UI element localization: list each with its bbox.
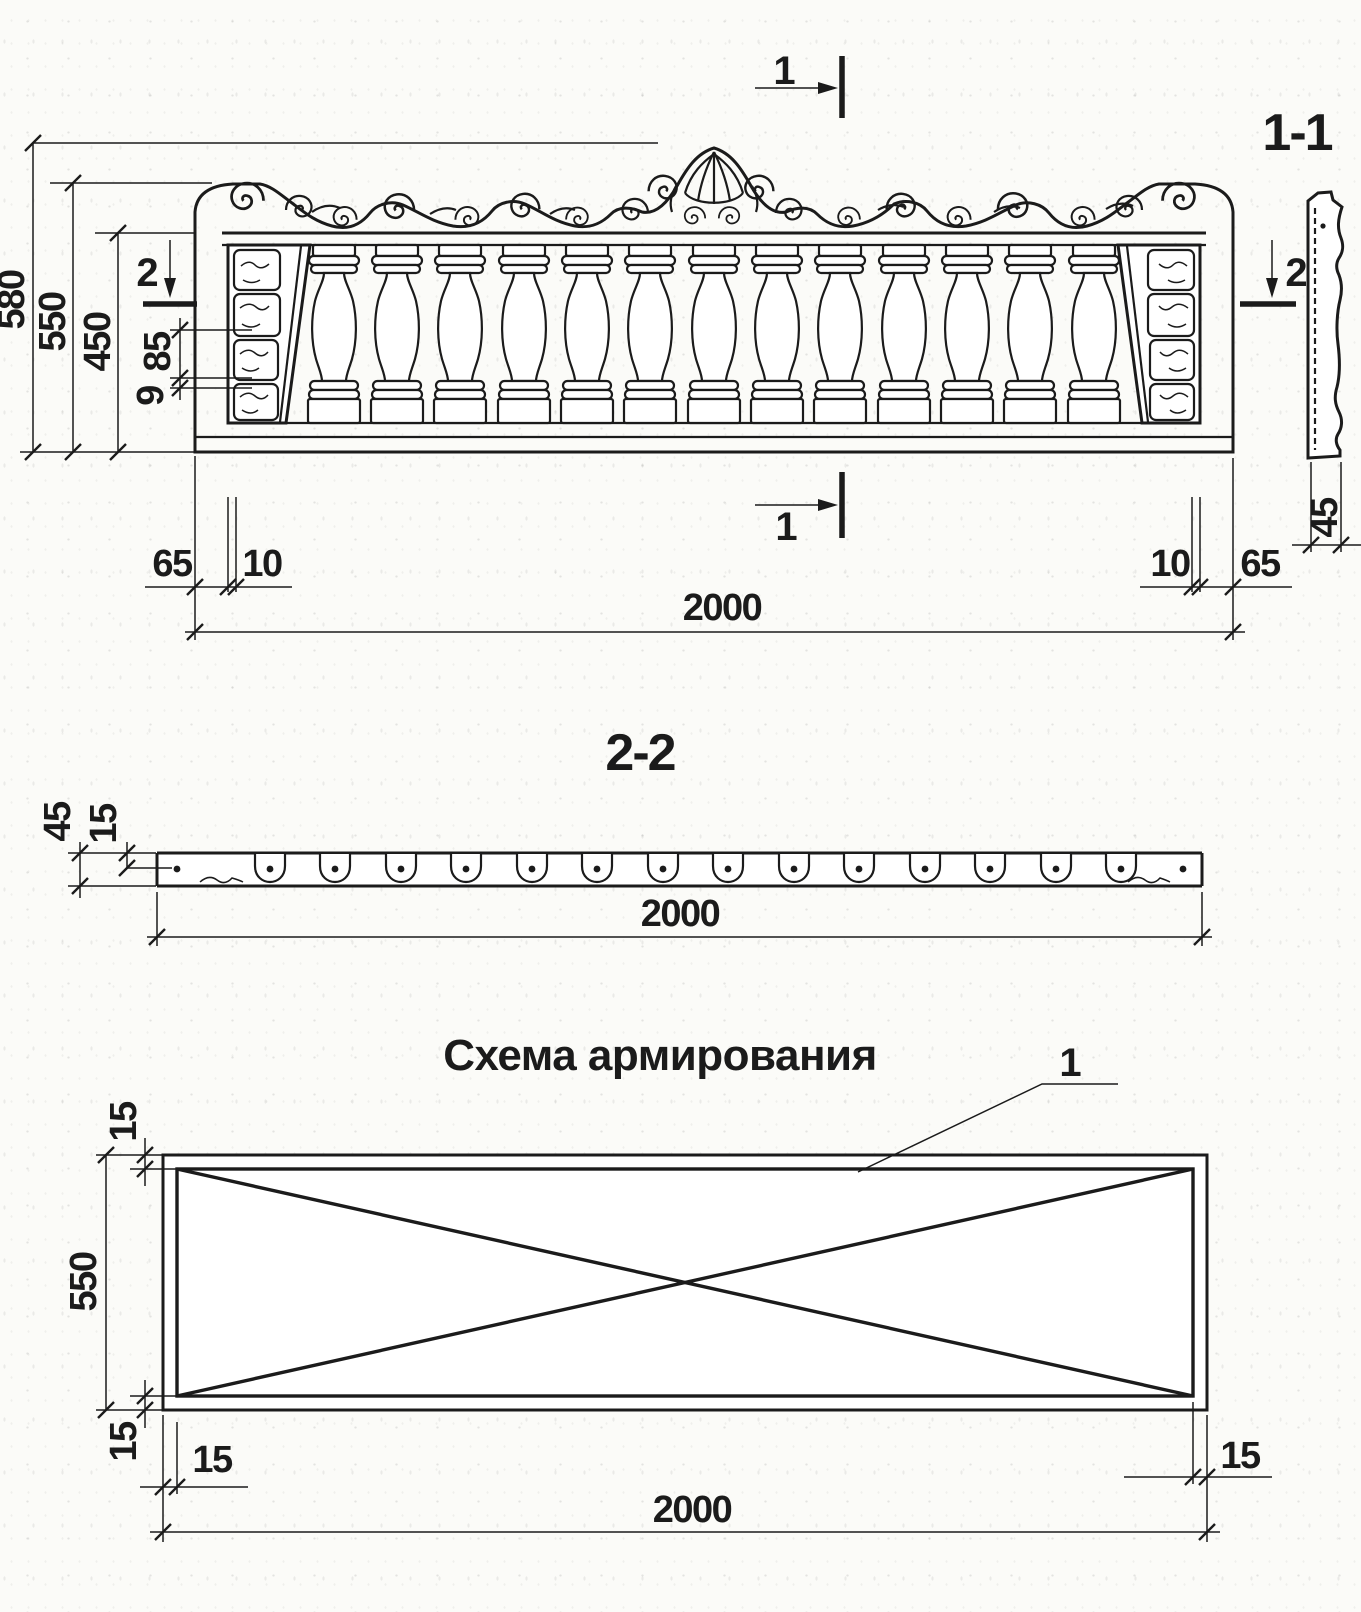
rebar-callout-label: 1 [1059,1041,1081,1085]
dim-cover-right: 15 [1220,1435,1261,1477]
rebar-dot-right-end [1180,866,1187,873]
right-end-panel [1118,245,1200,423]
reinforcement-title: Схема армирования [443,1031,877,1080]
section-mark-1-top: 1 [755,49,842,118]
dim-joint-right: 10 [1150,543,1190,585]
dim-overall-height: 580 [0,270,33,329]
reinforcement-left-dimensions: 15 550 15 [63,1101,176,1462]
rebar-dot-left-end [174,866,181,873]
balusters [308,245,1120,423]
left-end-panel [228,245,310,423]
dim-cover-left: 15 [192,1439,233,1481]
section-cut-2-right-label: 2 [1285,251,1306,295]
dim-panel-height: 550 [32,292,74,351]
section-1-1-title: 1-1 [1262,104,1332,162]
rebar-callout: 1 [858,1041,1118,1172]
elevation-bottom-dimensions: 65 10 2000 10 65 [145,456,1292,640]
section-mark-1-bottom: 1 [755,472,842,549]
technical-drawing: 580 550 450 85 9 [0,0,1361,1612]
drawing-sheet: 580 550 450 85 9 [0,0,1361,1612]
dim-joint-left: 10 [242,543,282,585]
dim-strip-thickness: 45 [37,801,79,842]
section-2-2-title: 2-2 [605,724,674,782]
dim-scheme-height: 550 [63,1252,105,1311]
side-profile-outline [1308,192,1343,458]
section-1-1-dimension: 45 [1292,462,1361,553]
dim-strip-length: 2000 [641,893,720,935]
section-2-2-view: 2-2 [37,724,1212,946]
side-rebar-dot [1320,223,1325,228]
dim-length: 2000 [683,587,762,629]
dim-side-thickness: 45 [1304,497,1346,538]
dim-cover-bottom: 15 [103,1421,145,1462]
dim-end-margin-left: 65 [152,543,193,585]
dim-scheme-length: 2000 [653,1489,732,1531]
reinforcement-bottom-dimensions: 15 15 2000 [140,1402,1272,1542]
dim-end-panel-lip: 9 [130,386,172,406]
section-cut-1-top-label: 1 [773,49,795,93]
section-mark-2-left: 2 [136,240,197,304]
dim-end-margin-right: 65 [1240,543,1281,585]
central-palmette [671,152,758,212]
section-cut-2-left-label: 2 [136,251,157,295]
dim-cover-top: 15 [103,1101,145,1142]
reinforcement-scheme: Схема армирования 1 15 550 [63,1031,1272,1542]
section-cut-1-bottom-label: 1 [775,505,797,549]
dim-baluster-field-height: 450 [77,312,119,371]
dim-end-panel-detail: 85 [137,331,179,372]
elevation-view: 580 550 450 85 9 [0,49,1307,640]
section-mark-2-right: 2 [1240,240,1307,304]
dim-rebar-cover: 15 [83,803,125,844]
section-1-1-view: 1-1 45 [1262,104,1361,553]
